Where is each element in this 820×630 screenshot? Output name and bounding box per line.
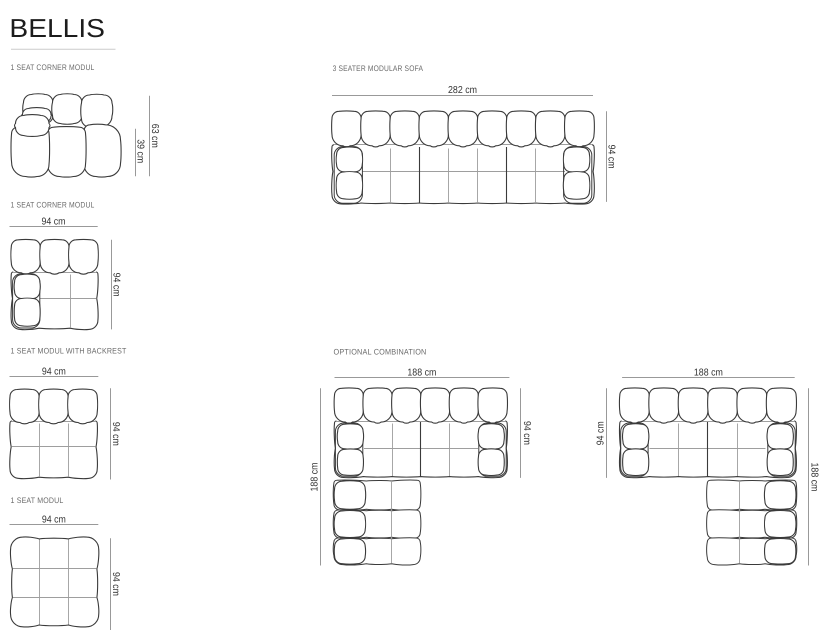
svg-text:94 cm: 94 cm (110, 273, 121, 297)
svg-text:1 SEAT MODUL: 1 SEAT MODUL (11, 496, 64, 505)
svg-text:188 cm: 188 cm (407, 368, 436, 379)
svg-text:63 cm: 63 cm (149, 124, 160, 148)
svg-text:188 cm: 188 cm (694, 368, 723, 379)
svg-text:1 SEAT MODUL WITH BACKREST: 1 SEAT MODUL WITH BACKREST (11, 347, 127, 356)
svg-text:94 cm: 94 cm (596, 421, 607, 445)
svg-text:94 cm: 94 cm (110, 572, 121, 596)
svg-text:94 cm: 94 cm (110, 422, 121, 446)
svg-text:1 SEAT CORNER MODUL: 1 SEAT CORNER MODUL (11, 201, 95, 210)
svg-text:3 SEATER MODULAR SOFA: 3 SEATER MODULAR SOFA (333, 64, 424, 73)
svg-text:39 cm: 39 cm (135, 139, 146, 163)
svg-text:BELLIS: BELLIS (9, 13, 105, 43)
svg-text:94 cm: 94 cm (42, 217, 66, 228)
svg-text:282 cm: 282 cm (448, 85, 477, 96)
svg-text:OPTIONAL COMBINATION: OPTIONAL COMBINATION (334, 348, 427, 357)
svg-text:1 SEAT CORNER MODUL: 1 SEAT CORNER MODUL (11, 63, 95, 72)
svg-text:94 cm: 94 cm (521, 421, 532, 445)
svg-text:94 cm: 94 cm (42, 366, 66, 377)
svg-text:188 cm: 188 cm (809, 463, 820, 492)
svg-text:188 cm: 188 cm (310, 463, 321, 492)
svg-text:94 cm: 94 cm (606, 145, 617, 169)
